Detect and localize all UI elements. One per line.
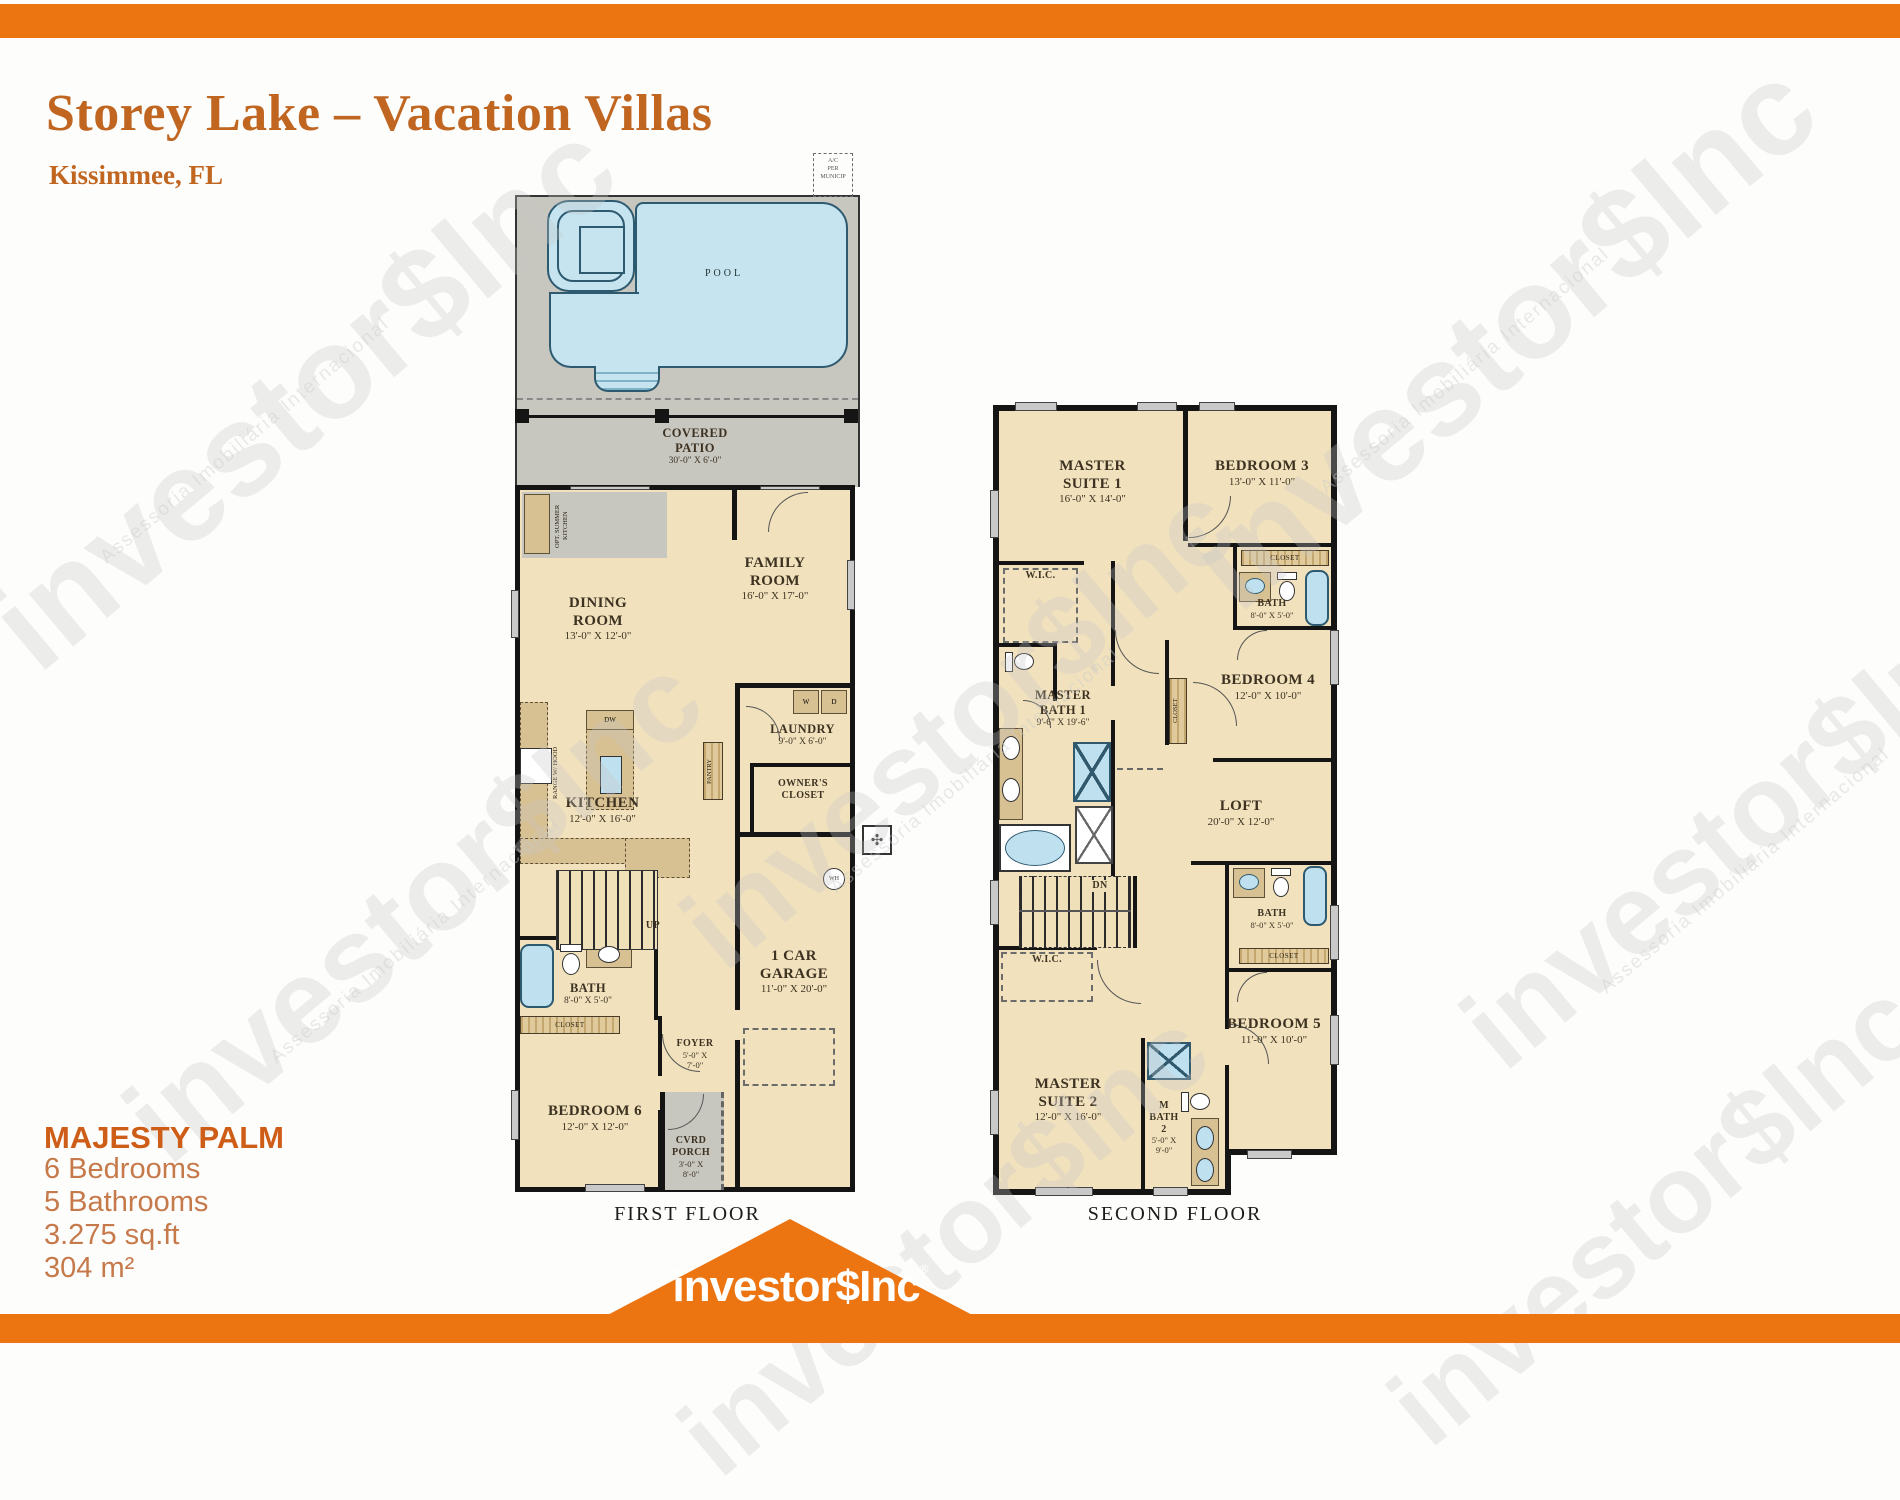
room-label-covered-patio: COVERED PATIO 30'-0" X 6'-0" (615, 426, 775, 467)
footer-logo: investor$Inc® (620, 1262, 980, 1312)
sink-icon (1002, 736, 1020, 760)
window-marker (760, 486, 820, 490)
garage-door-dashed (743, 1028, 835, 1086)
shower (1147, 1042, 1191, 1080)
wall (735, 832, 853, 837)
bathtub (1305, 570, 1329, 626)
room-label-master-suite-2: MASTER SUITE 2 12'-0" X 16'-0" (1007, 1076, 1129, 1124)
range-label: RANGE W/ HOOD (552, 735, 560, 810)
toilet (1005, 652, 1013, 672)
dishwasher: DW (586, 710, 634, 730)
summer-kitchen-label: OPT. SUMMER KITCHEN (554, 494, 570, 558)
dryer: D (821, 690, 847, 714)
stairs-up (556, 870, 658, 950)
wall (735, 683, 853, 688)
property-bathrooms: 5 Bathrooms (44, 1186, 208, 1219)
window-marker (1137, 402, 1177, 411)
wic-label: W.I.C. (1003, 570, 1078, 582)
footer-orange-band (0, 1314, 1900, 1343)
room-label-garage: 1 CAR GARAGE 11'-0" X 20'-0" (738, 948, 850, 996)
room-label-bedroom-3: BEDROOM 3 13'-0" X 11'-0" (1198, 458, 1326, 489)
wall (1213, 758, 1331, 762)
wic-label: W.I.C. (1001, 954, 1093, 966)
washer: W (793, 690, 819, 714)
room-label-bedroom-6: BEDROOM 6 12'-0" X 12'-0" (530, 1103, 660, 1134)
stairs-down-label: DN (1085, 880, 1115, 892)
wall (999, 561, 1084, 565)
wall (1133, 876, 1137, 948)
room-label-master-bath-1: MASTER BATH 1 9'-6" X 19'-6" (1007, 688, 1119, 729)
window-marker (1247, 1150, 1292, 1159)
sink-icon (1002, 778, 1020, 802)
pool (635, 202, 848, 368)
window-marker (990, 1090, 999, 1135)
ac-unit-icon: ✣ (862, 825, 892, 855)
wall (732, 490, 737, 540)
top-orange-bar (0, 4, 1900, 38)
room-label-cvrd-porch: CVRD PORCH 3'-0" X 8'-0" (658, 1135, 724, 1179)
room-label-laundry: LAUNDRY 9'-0" X 6'-0" (755, 722, 850, 748)
wall (1225, 861, 1229, 969)
window-marker (1330, 905, 1339, 960)
first-floor-plan: A/C PER MUNICIP POOL COVERED PATIO 30'-0… (510, 150, 905, 1215)
window-marker (585, 1184, 645, 1192)
stairs-landing-line (1019, 910, 1131, 912)
window-marker (990, 880, 999, 925)
property-area-m2: 304 m² (44, 1252, 134, 1285)
shower (1073, 742, 1111, 802)
wall (750, 763, 754, 835)
patio-column (515, 409, 529, 423)
deck-dashed-line (517, 398, 858, 400)
second-floor-plan: MASTER SUITE 1 16'-0" X 14'-0" BEDROOM 3… (985, 400, 1360, 1215)
watermark-tagline: Assessoria Imobiliária Internacional (1596, 743, 1894, 998)
sink-icon (1239, 874, 1259, 890)
watermark-brand: investor$Inc (1365, 957, 1900, 1471)
window-marker (1153, 1187, 1188, 1196)
wall (750, 763, 853, 767)
room-label-bath: BATH 8'-0" X 5'-0" (548, 981, 628, 1007)
stairs-up-label: UP (638, 920, 668, 932)
window-marker (1330, 630, 1339, 685)
toilet (1279, 581, 1295, 601)
room-label-foyer: FOYER 5'-0" X 7'-0" (660, 1038, 730, 1070)
pantry-label: PANTRY (706, 744, 714, 798)
toilet (1277, 572, 1297, 580)
toilet (1273, 877, 1289, 897)
wall (1233, 626, 1331, 630)
toilet (1271, 868, 1291, 876)
page-title: Storey Lake – Vacation Villas (46, 84, 713, 143)
wall (1233, 543, 1237, 628)
pool-left-section (549, 292, 639, 368)
range (520, 748, 552, 784)
linen-cabinet (1075, 806, 1113, 864)
wall (1183, 411, 1188, 541)
water-heater-icon: WH (823, 868, 845, 890)
pool-label: POOL (705, 268, 743, 279)
property-name: MAJESTY PALM (44, 1120, 284, 1156)
spa (547, 200, 635, 292)
room-label-dining-room: DINING ROOM 13'-0" X 12'-0" (533, 595, 663, 643)
window-marker (990, 490, 999, 538)
room-label-master-suite-1: MASTER SUITE 1 16'-0" X 14'-0" (1025, 458, 1160, 506)
summer-kitchen-cabinet (524, 494, 550, 554)
watermark-tagline: Assessoria Imobiliária Internacional (96, 313, 394, 568)
window-marker (1199, 402, 1235, 411)
closet: CLOSET (1241, 550, 1329, 566)
window-marker (511, 1090, 519, 1140)
closet-label: CLOSET (1172, 680, 1180, 742)
patio-column (844, 409, 858, 423)
wall (735, 683, 740, 833)
toilet (1190, 1093, 1210, 1110)
window-marker (570, 486, 650, 490)
pool-steps (594, 366, 660, 392)
second-floor-caption: SECOND FLOOR (1085, 1203, 1265, 1226)
wall (1191, 861, 1331, 865)
closet: CLOSET (1239, 948, 1329, 964)
room-label-m-bath-2: M BATH 2 5'-0" X 9'-0" (1143, 1100, 1185, 1155)
room-label-bath-upper: BATH 8'-0" X 5'-0" (1240, 598, 1304, 620)
window-marker (1015, 402, 1057, 411)
wall (1188, 543, 1331, 547)
room-label-bedroom-5: BEDROOM 5 11'-0" X 10'-0" (1213, 1016, 1335, 1047)
kitchen-sink (600, 756, 622, 794)
window-marker (511, 590, 519, 638)
wall (735, 1040, 740, 1192)
watermark-brand: investor$Inc (1437, 558, 1900, 1095)
wall (1225, 1065, 1229, 1149)
sink-icon (1245, 578, 1265, 594)
watermark-tagline: Assessoria Imobiliária Internacional (1316, 243, 1614, 498)
room-label-bath-lower: BATH 8'-0" X 5'-0" (1240, 908, 1304, 930)
closet: CLOSET (520, 1016, 620, 1034)
toilet (1014, 653, 1034, 670)
sink-icon (598, 946, 620, 963)
patio-beam (517, 415, 858, 418)
wall (993, 1189, 1231, 1195)
room-label-loft: LOFT 20'-0" X 12'-0" (1180, 798, 1302, 829)
wall (999, 643, 1057, 647)
window-marker (847, 560, 855, 610)
cased-opening-dashed (1117, 768, 1163, 770)
pool-equipment-note: A/C PER MUNICIP (813, 158, 853, 181)
wall (1229, 968, 1331, 972)
property-area-sqft: 3.275 sq.ft (44, 1219, 179, 1252)
page-subtitle: Kissimmee, FL (49, 160, 223, 191)
room-label-bedroom-4: BEDROOM 4 12'-0" X 10'-0" (1207, 672, 1329, 703)
patio-column (655, 409, 669, 423)
sink-icon (1196, 1158, 1214, 1182)
room-label-owners-closet: OWNER'S CLOSET (758, 778, 848, 802)
toilet (562, 953, 580, 975)
room-label-family-room: FAMILY ROOM 16'-0" X 17'-0" (705, 555, 845, 603)
toilet (560, 944, 582, 952)
sink-icon (1196, 1126, 1214, 1150)
bathtub (1303, 866, 1327, 926)
registered-mark-icon: ® (920, 1262, 928, 1276)
toilet (1181, 1092, 1189, 1112)
property-bedrooms: 6 Bedrooms (44, 1153, 200, 1186)
wall (1111, 561, 1115, 686)
garden-tub (1005, 830, 1065, 866)
window-marker (1035, 1187, 1093, 1196)
